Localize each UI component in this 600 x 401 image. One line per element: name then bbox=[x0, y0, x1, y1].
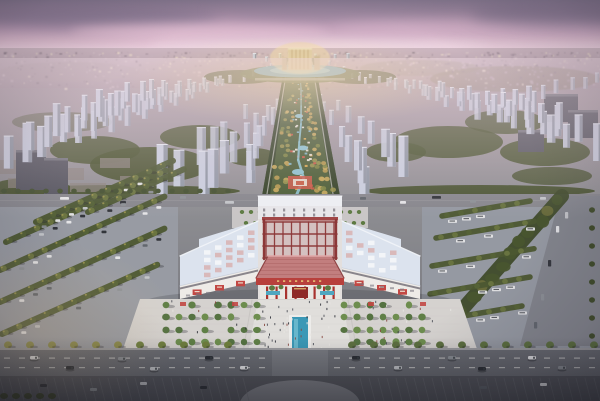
bottom-parking-strip bbox=[0, 376, 600, 401]
main-road bbox=[0, 348, 600, 378]
aerial-rendering bbox=[0, 0, 600, 401]
city-scene bbox=[0, 0, 600, 401]
landmark-tower bbox=[270, 42, 330, 74]
